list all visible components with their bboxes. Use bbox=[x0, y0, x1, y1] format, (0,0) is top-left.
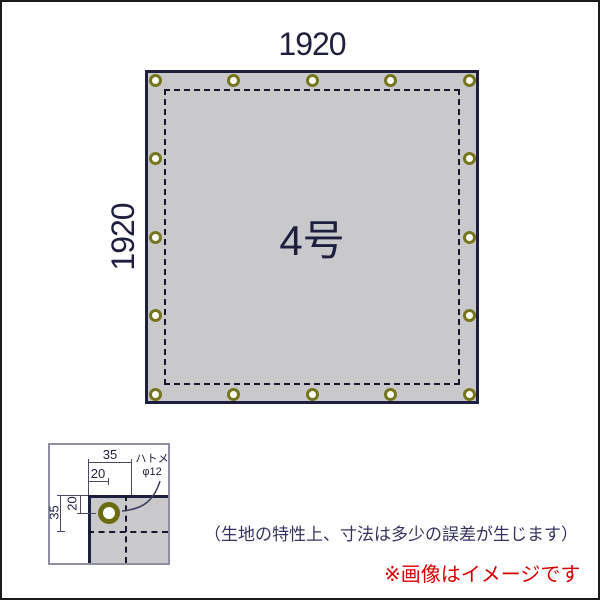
grommet-icon bbox=[463, 152, 476, 165]
product-diagram-image: 1920 1920 4号 35 20 35 20 ハトメ φ12 bbox=[0, 0, 600, 600]
grommet-layer bbox=[145, 70, 479, 404]
tolerance-note: （生地の特性上、寸法は多少の誤差が生じます） bbox=[204, 523, 578, 547]
grommet-icon bbox=[306, 388, 319, 401]
grommet-icon bbox=[463, 309, 476, 322]
grommet-icon bbox=[306, 74, 319, 87]
image-disclaimer: ※画像はイメージです bbox=[384, 562, 580, 588]
grommet-icon bbox=[227, 74, 240, 87]
corner-detail-inset: 35 20 35 20 ハトメ φ12 bbox=[48, 443, 170, 565]
width-dimension-label: 1920 bbox=[145, 28, 479, 60]
grommet-icon bbox=[463, 388, 476, 401]
grommet-icon bbox=[149, 152, 162, 165]
grommet-icon bbox=[149, 309, 162, 322]
grommet-icon bbox=[149, 388, 162, 401]
grommet-icon bbox=[149, 231, 162, 244]
grommet-icon bbox=[227, 388, 240, 401]
grommet-icon bbox=[463, 231, 476, 244]
grommet-icon bbox=[384, 74, 397, 87]
leader-line bbox=[50, 445, 168, 563]
grommet-icon bbox=[149, 74, 162, 87]
grommet-icon bbox=[463, 74, 476, 87]
height-dimension-label: 1920 bbox=[107, 177, 139, 297]
grommet-icon bbox=[384, 388, 397, 401]
